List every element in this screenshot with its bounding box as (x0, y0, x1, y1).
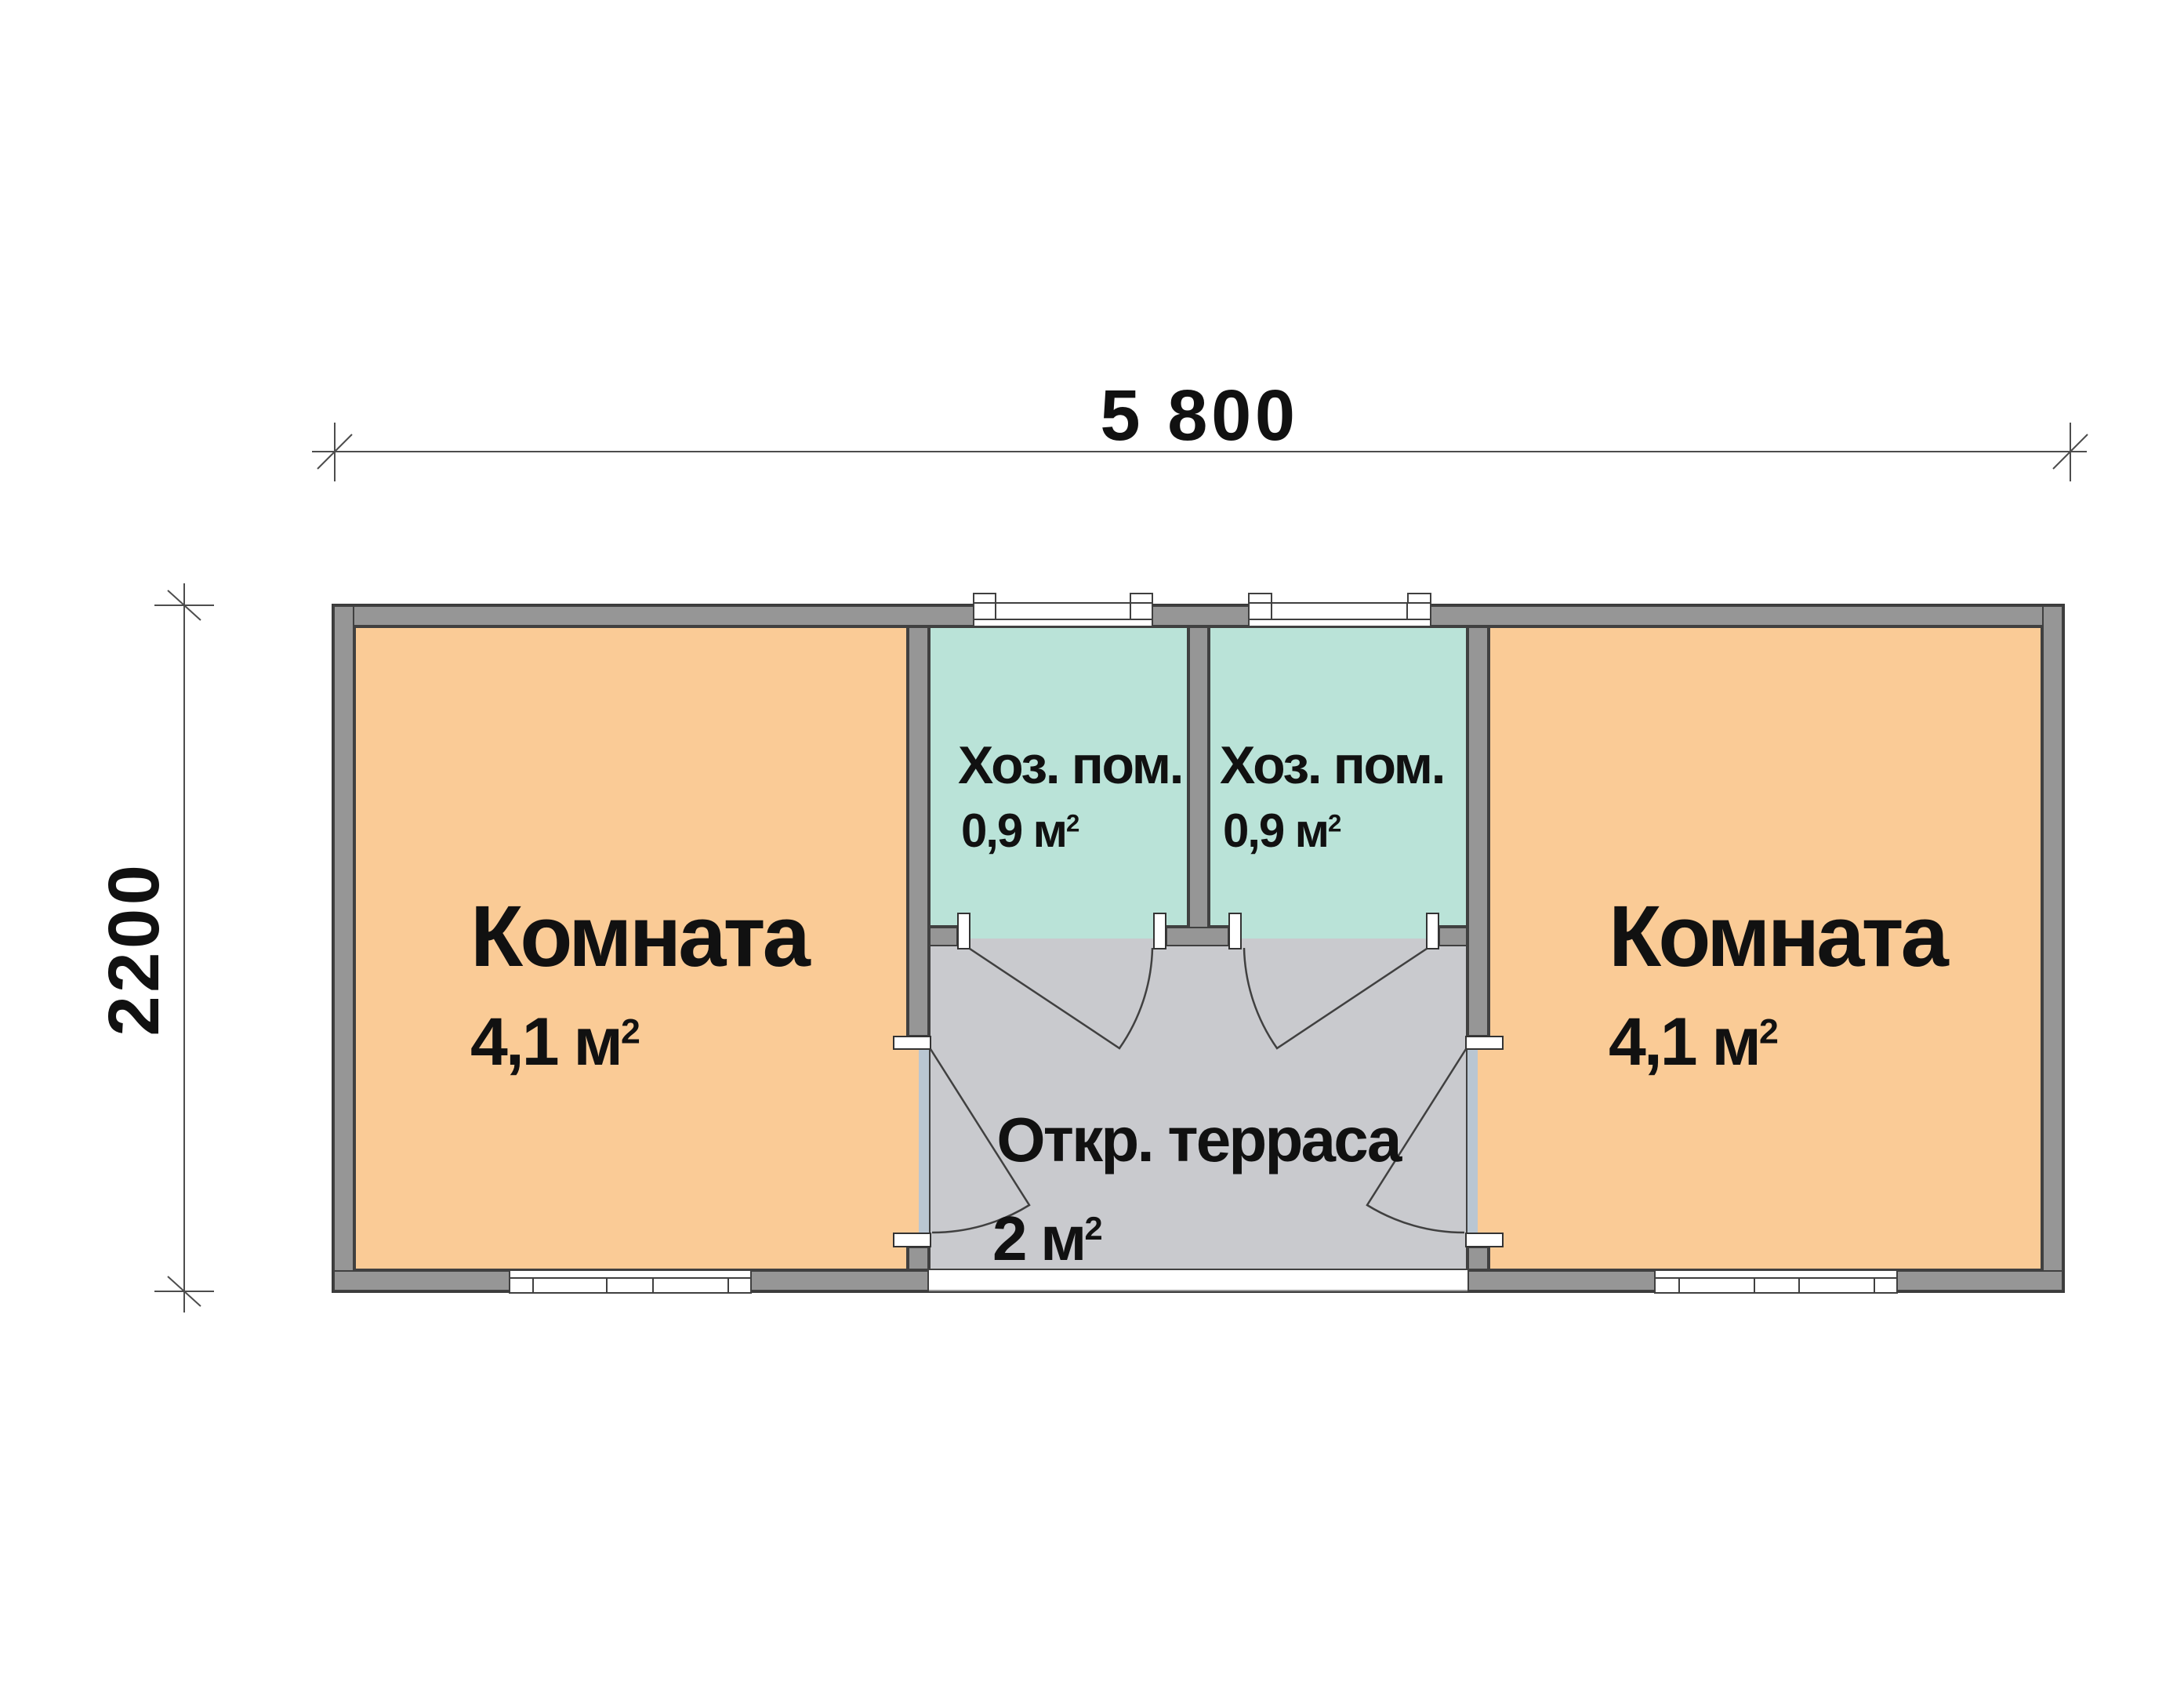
terrace-area: 2 м2 (992, 1207, 1101, 1270)
terrace-name: Откр. терраса (929, 1109, 1467, 1171)
room-left-area: 4,1 м2 (470, 1008, 638, 1076)
room-right-area: 4,1 м2 (1609, 1008, 1776, 1076)
floor-plan: 5 800 2200 Комната 4,1 м2 Комната 4,1 м2… (0, 0, 2184, 1681)
room-right-name: Комната (1609, 894, 1946, 980)
utility-right-area: 0,9 м2 (1223, 808, 1340, 855)
dimension-width-label: 5 800 (964, 379, 1435, 452)
utility-left-area: 0,9 м2 (961, 808, 1078, 855)
room-left-name: Комната (470, 894, 807, 980)
utility-right-name: Хоз. пом. (1220, 739, 1444, 792)
dimension-height-label: 2200 (98, 713, 176, 1184)
utility-left-name: Хоз. пом. (958, 739, 1182, 792)
